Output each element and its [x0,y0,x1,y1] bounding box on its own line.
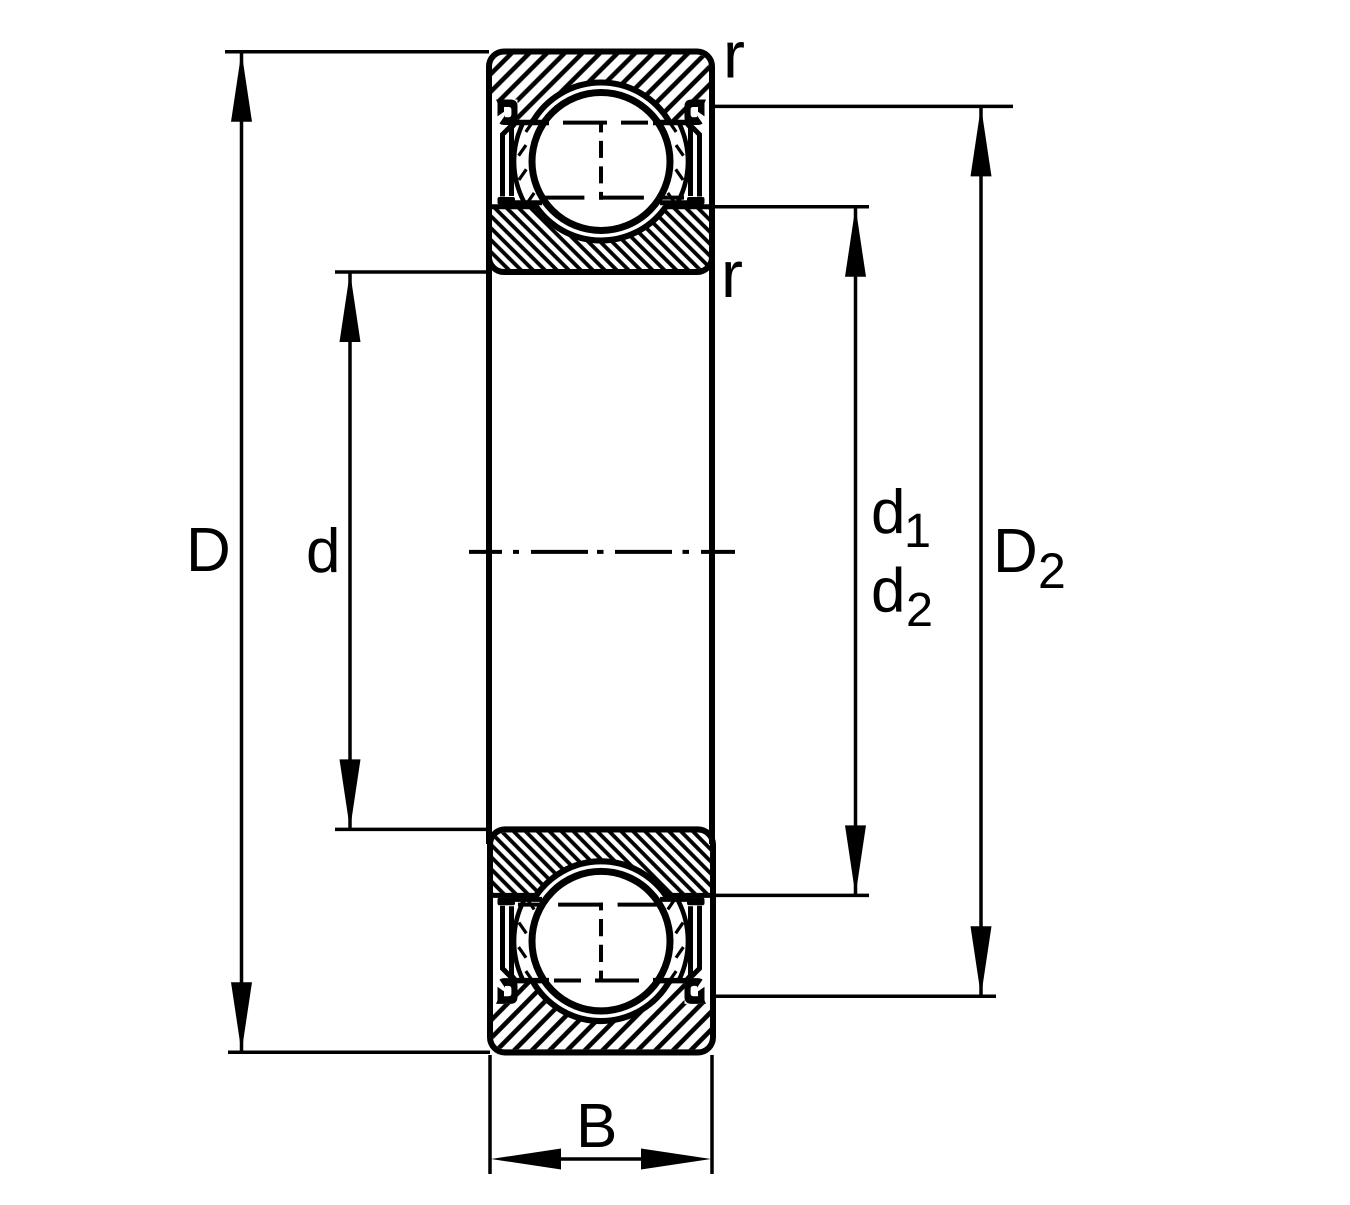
svg-text:d: d [871,557,905,626]
svg-text:r: r [723,18,745,92]
svg-text:d: d [871,478,905,547]
svg-text:1: 1 [904,504,931,558]
svg-text:D: D [993,517,1038,586]
svg-text:r: r [721,237,743,311]
svg-text:D: D [186,516,231,585]
svg-text:2: 2 [906,583,933,637]
svg-text:d: d [306,517,340,586]
svg-text:B: B [576,1092,617,1161]
svg-text:2: 2 [1038,543,1066,599]
